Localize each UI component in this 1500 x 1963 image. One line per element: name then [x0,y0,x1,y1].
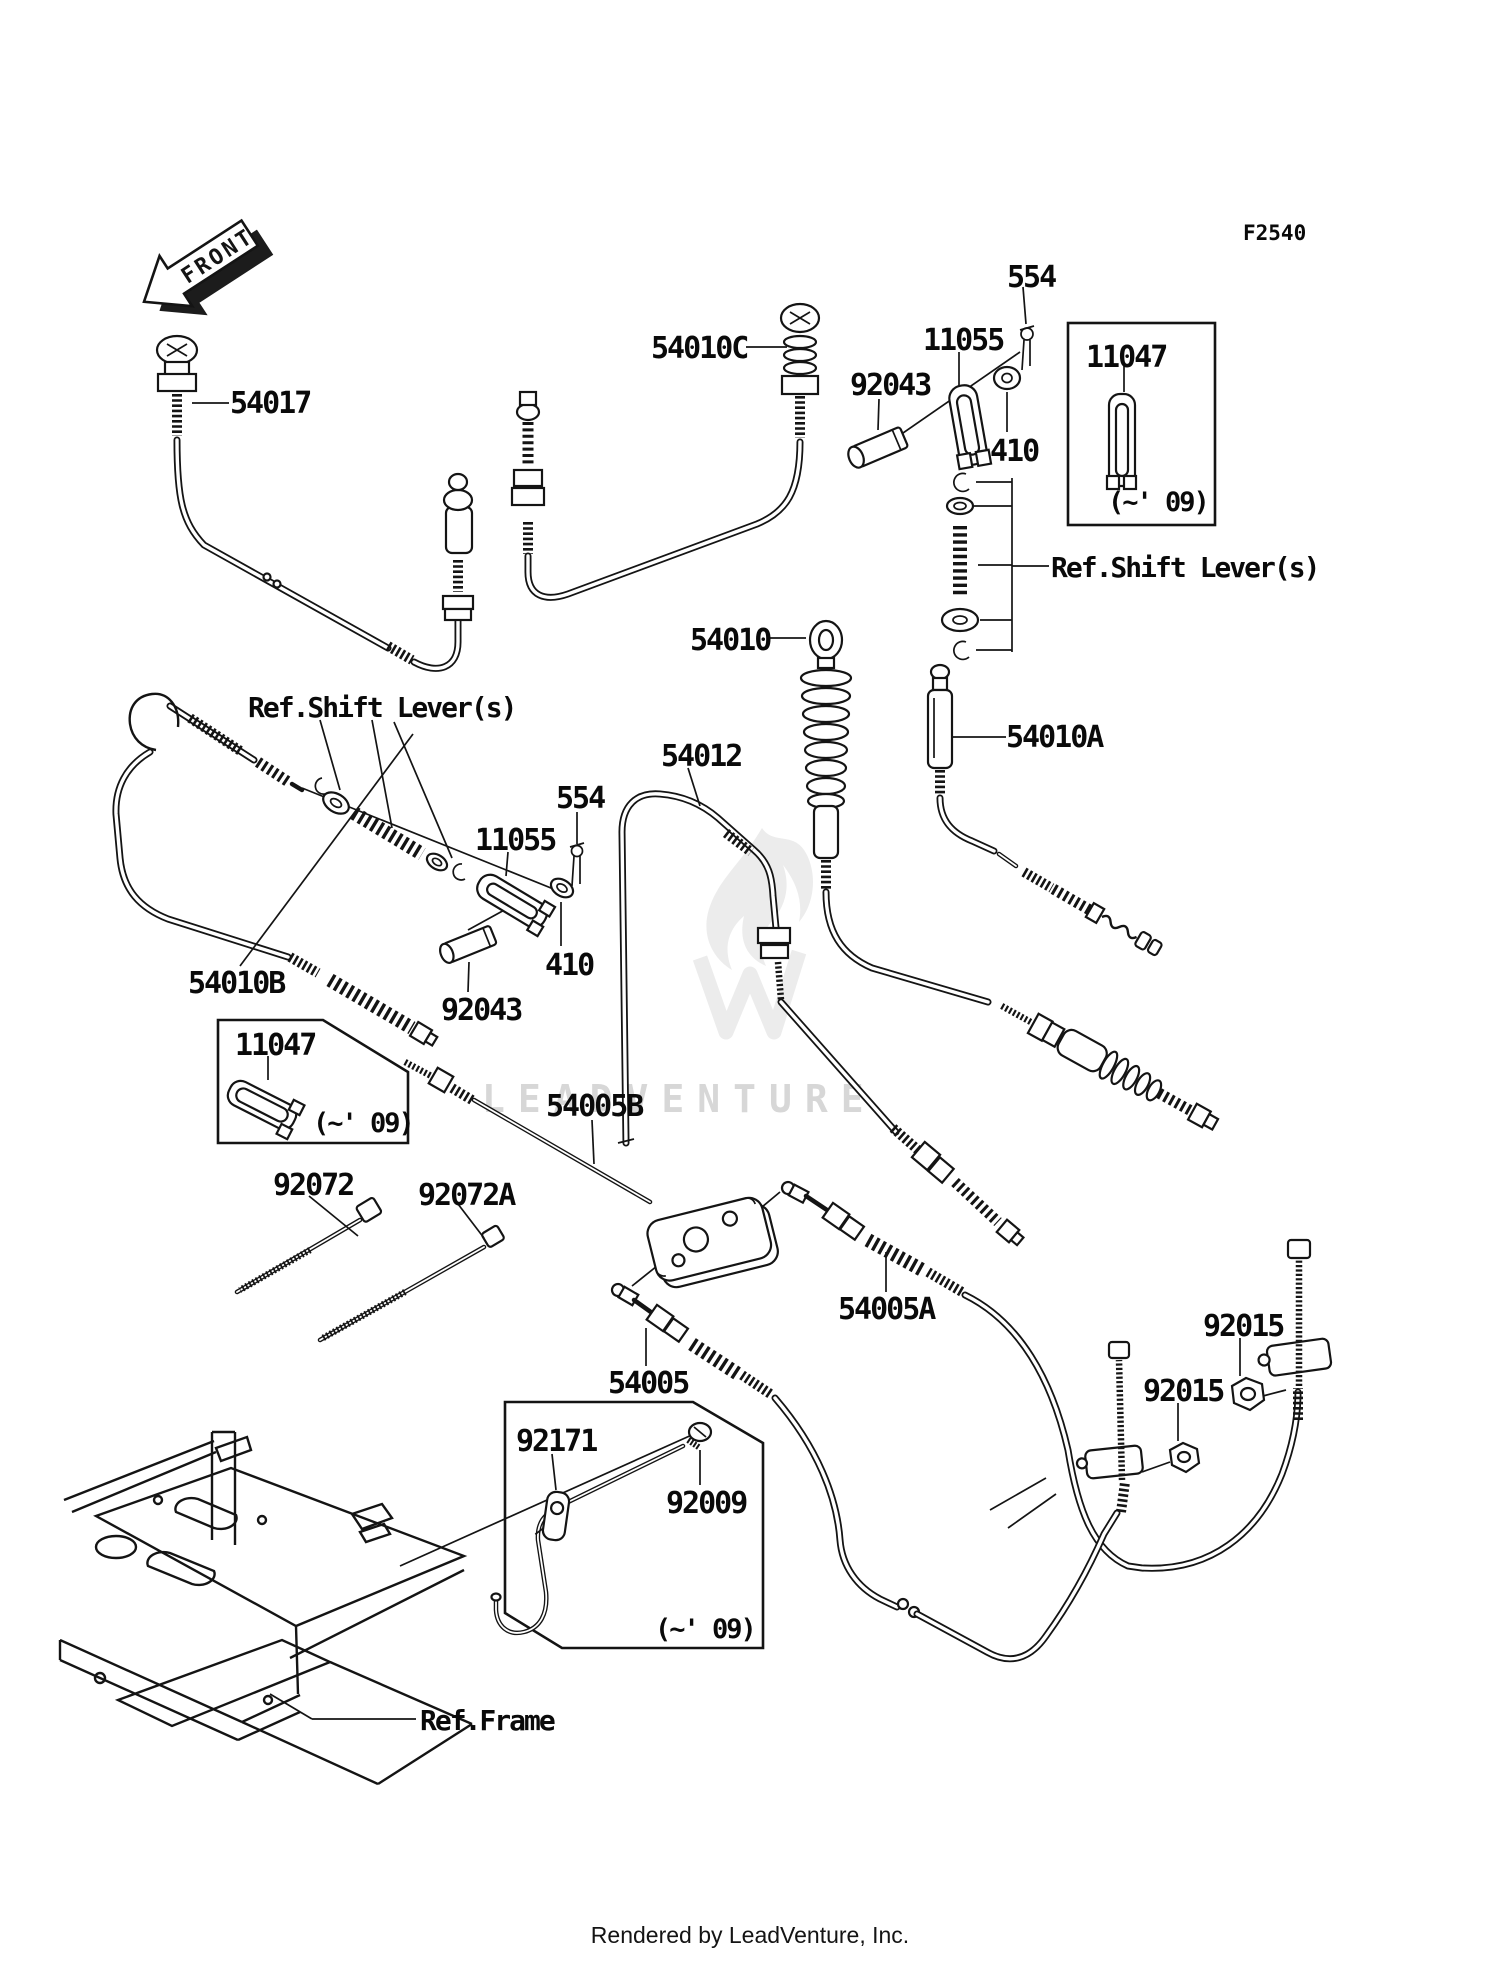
part-label-54012: 54012 [661,741,741,773]
front-direction-arrow: FRONT [128,204,282,341]
part-label-54010B: 54010B [188,968,284,1000]
part-label-92072A: 92072A [418,1180,514,1212]
part-label-11055-mid: 11055 [475,825,555,857]
part-label-54010: 54010 [690,625,770,657]
part-label-92171: 92171 [516,1426,596,1458]
note-model-year-bottom: (~' 09) [655,1616,755,1644]
part-label-410-top: 410 [990,436,1038,468]
part-label-92009: 92009 [666,1488,746,1520]
part-label-92015-left: 92015 [1143,1376,1223,1408]
ref-label-frame: Ref.Frame [420,1706,554,1735]
cable-54010A [928,665,1163,957]
cable-54010 [801,621,1222,1137]
part-label-92015-right: 92015 [1203,1311,1283,1343]
cable-54017 [157,336,473,668]
cable-tie-92072 [237,1197,382,1292]
part-label-54005: 54005 [608,1368,688,1400]
cable-54005 [610,1282,1144,1659]
junction-block [632,1192,781,1291]
cable-54005A [780,1180,1332,1568]
washer-410-top [994,367,1020,389]
part-label-54010C: 54010C [651,333,747,365]
clamp-bracket-left [1076,1445,1144,1480]
cable-tie-92072A [320,1225,505,1340]
cable-54010A-end [1020,865,1163,957]
part-label-54005B: 54005B [546,1091,642,1123]
pin-92043-mid [438,925,497,965]
leadventure-text-watermark: LEADVENTURE [482,1077,877,1121]
cotter-pin-554-mid [570,843,584,886]
part-label-554-mid: 554 [556,783,604,815]
part-label-92043-top: 92043 [850,370,930,402]
part-label-11047-left: 11047 [235,1030,315,1062]
part-label-92072: 92072 [273,1170,353,1202]
parts-diagram-page: LEADVENTURE FRONT [0,0,1500,1963]
adjuster-bolt-left [1119,1360,1122,1480]
shift-lever-spring-set-right [942,473,1049,659]
clevis-11055-top [945,383,991,469]
part-label-54017: 54017 [230,388,310,420]
leadventure-flame-watermark [700,828,813,1032]
diagram-code: F2540 [1243,222,1306,244]
note-model-year-top: (~' 09) [1108,489,1208,517]
clip-11047-left [221,1072,304,1139]
note-model-year-left: (~' 09) [313,1110,413,1138]
part-label-11055-top: 11055 [923,325,1003,357]
part-label-554-top: 554 [1007,262,1055,294]
clevis-11055-mid [471,867,555,936]
part-label-54010A: 54010A [1006,722,1102,754]
ref-label-shift-lever-left: Ref.Shift Lever(s) [248,693,515,722]
nut-92015-left [1142,1403,1199,1472]
cable-54010-end [994,993,1222,1138]
ref-label-shift-lever-right: Ref.Shift Lever(s) [1051,553,1318,582]
cotter-pin-554-top [1020,326,1034,370]
part-label-410-mid: 410 [545,950,593,982]
part-label-54005A: 54005A [838,1294,934,1326]
frame-sketch [60,1432,472,1784]
clip-11047-top [1107,394,1136,489]
part-label-92043-mid: 92043 [441,995,521,1027]
part-label-11047-top: 11047 [1086,342,1166,374]
render-credit: Rendered by LeadVenture, Inc. [0,1922,1500,1949]
